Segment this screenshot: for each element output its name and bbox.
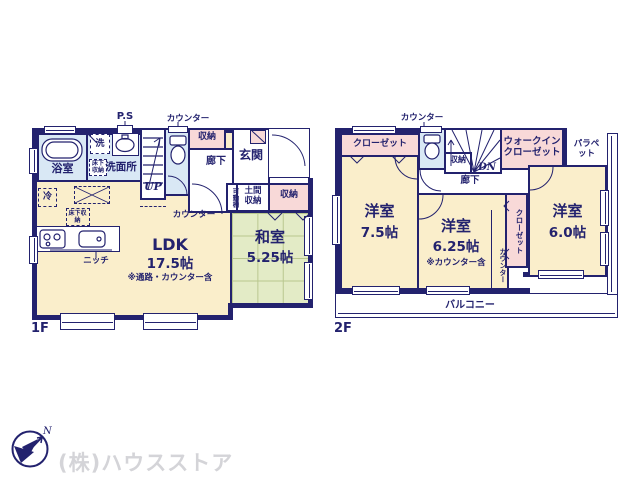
stairs-counter-dashed xyxy=(140,200,166,207)
toilet-door-arc-2f xyxy=(420,170,441,191)
label-entrance: 玄関 xyxy=(232,149,270,162)
label-bedroom1-size: 7.5帖 xyxy=(340,226,419,241)
vanity-sink-box xyxy=(112,133,139,156)
window xyxy=(426,286,470,295)
entrance-corner-cabinet xyxy=(250,130,266,144)
label-ldk-size: 17.5帖 xyxy=(120,257,220,272)
room-bedroom3 xyxy=(528,165,607,277)
label-floor2: 2F xyxy=(334,322,374,337)
label-washer: 洗 xyxy=(90,139,110,149)
svg-text:N: N xyxy=(42,426,53,437)
window xyxy=(143,313,198,330)
label-hallway-1f: 廊下 xyxy=(198,156,234,167)
floorplan-canvas: 浴室 洗 洗面所 床下収納 床下収納 P.S カウンター UP 収納 廊下 玄関… xyxy=(0,0,640,480)
wall-segment xyxy=(228,303,233,320)
label-ldk-name: LDK xyxy=(120,236,220,254)
room-bedroom1 xyxy=(340,155,419,290)
label-movable-shelf: 可動棚 xyxy=(228,185,238,211)
toilet-counter-box-2f xyxy=(420,126,442,133)
label-washroom: 洗面所 xyxy=(100,162,142,174)
label-niche: ニッチ xyxy=(78,257,114,267)
window xyxy=(29,236,38,264)
label-wic: ウォークインクローゼット xyxy=(503,137,561,158)
pipe-space-box xyxy=(117,125,133,134)
label-stairs-up: UP xyxy=(140,181,166,193)
label-bedroom3-size: 6.0帖 xyxy=(528,226,607,241)
label-underfloor-b: 床下収納 xyxy=(66,211,89,224)
window xyxy=(538,270,584,279)
label-counter-side: カウンター xyxy=(493,243,506,288)
label-storage-a: 収納 xyxy=(188,132,226,142)
label-underfloor-a: 床下収納 xyxy=(90,161,106,174)
label-bedroom2-size: 6.25帖 xyxy=(417,240,495,255)
room-toilet-1f xyxy=(164,128,190,196)
room-toilet-2f xyxy=(418,128,446,170)
label-closet-b: クローゼット xyxy=(510,198,523,264)
kitchen-layout-box xyxy=(74,186,110,204)
window xyxy=(304,262,313,300)
label-fridge: 冷 xyxy=(38,192,57,202)
label-bedroom3-name: 洋室 xyxy=(528,203,607,220)
label-bathroom: 浴室 xyxy=(37,163,88,175)
entrance-porch xyxy=(268,128,310,178)
label-hallway-2f: 廊下 xyxy=(452,176,488,187)
label-storage-b: 収納 xyxy=(268,190,310,200)
window xyxy=(44,126,76,134)
label-washitsu-size: 5.25帖 xyxy=(230,251,310,266)
label-closet-a: クローゼット xyxy=(340,139,420,149)
kitchen-counter xyxy=(36,226,120,252)
window xyxy=(352,286,400,295)
label-bedroom2-note: ※カウンター含 xyxy=(412,259,500,269)
label-ps: P.S xyxy=(110,111,140,122)
label-floor1: 1F xyxy=(31,322,71,337)
label-counter-mid-1f: カウンター xyxy=(166,211,222,221)
label-bedroom2-name: 洋室 xyxy=(417,218,495,235)
company-name: (株)ハウスストア xyxy=(58,447,233,477)
label-storage-2f: 収納 xyxy=(444,156,472,165)
label-entrance-storage: 土間収納 xyxy=(242,187,264,206)
label-counter-top-2f: カウンター xyxy=(398,114,446,124)
label-balcony: バルコニー xyxy=(430,300,510,311)
toilet-counter-box xyxy=(168,126,188,133)
window xyxy=(352,126,396,134)
label-parapet: パラペット xyxy=(572,140,601,159)
label-ldk-note: ※通路・カウンター含 xyxy=(108,274,232,284)
label-stairs-dn: DN xyxy=(472,162,502,173)
label-bedroom1-name: 洋室 xyxy=(340,203,419,220)
label-washitsu-name: 和室 xyxy=(230,229,310,246)
label-counter-top-1f: カウンター xyxy=(160,115,216,125)
